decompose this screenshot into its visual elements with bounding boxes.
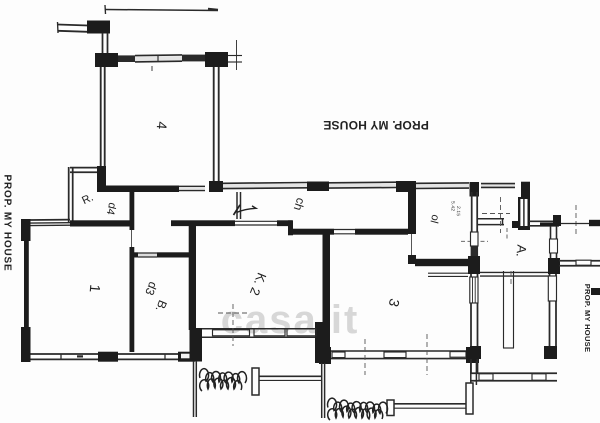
svg-text:PROP. MY HOUSE: PROP. MY HOUSE xyxy=(583,284,592,353)
svg-text:5.42: 5.42 xyxy=(449,201,455,211)
svg-text:2.15: 2.15 xyxy=(455,206,461,216)
svg-text:d4: d4 xyxy=(104,201,118,216)
svg-text:B.: B. xyxy=(153,298,170,314)
svg-text:1: 1 xyxy=(86,284,103,293)
svg-text:PROP. MY HOUSE: PROP. MY HOUSE xyxy=(2,175,13,272)
svg-text:d3: d3 xyxy=(142,280,160,298)
svg-text:4: 4 xyxy=(154,121,171,130)
svg-text:A.: A. xyxy=(513,244,529,258)
svg-text:K. 2: K. 2 xyxy=(247,271,270,298)
svg-text:ol: ol xyxy=(427,213,441,224)
svg-text:R.: R. xyxy=(80,192,95,208)
svg-text:3: 3 xyxy=(386,297,404,309)
svg-text:PROP. MY HOUSE: PROP. MY HOUSE xyxy=(323,118,429,132)
svg-text:ch: ch xyxy=(291,196,308,212)
